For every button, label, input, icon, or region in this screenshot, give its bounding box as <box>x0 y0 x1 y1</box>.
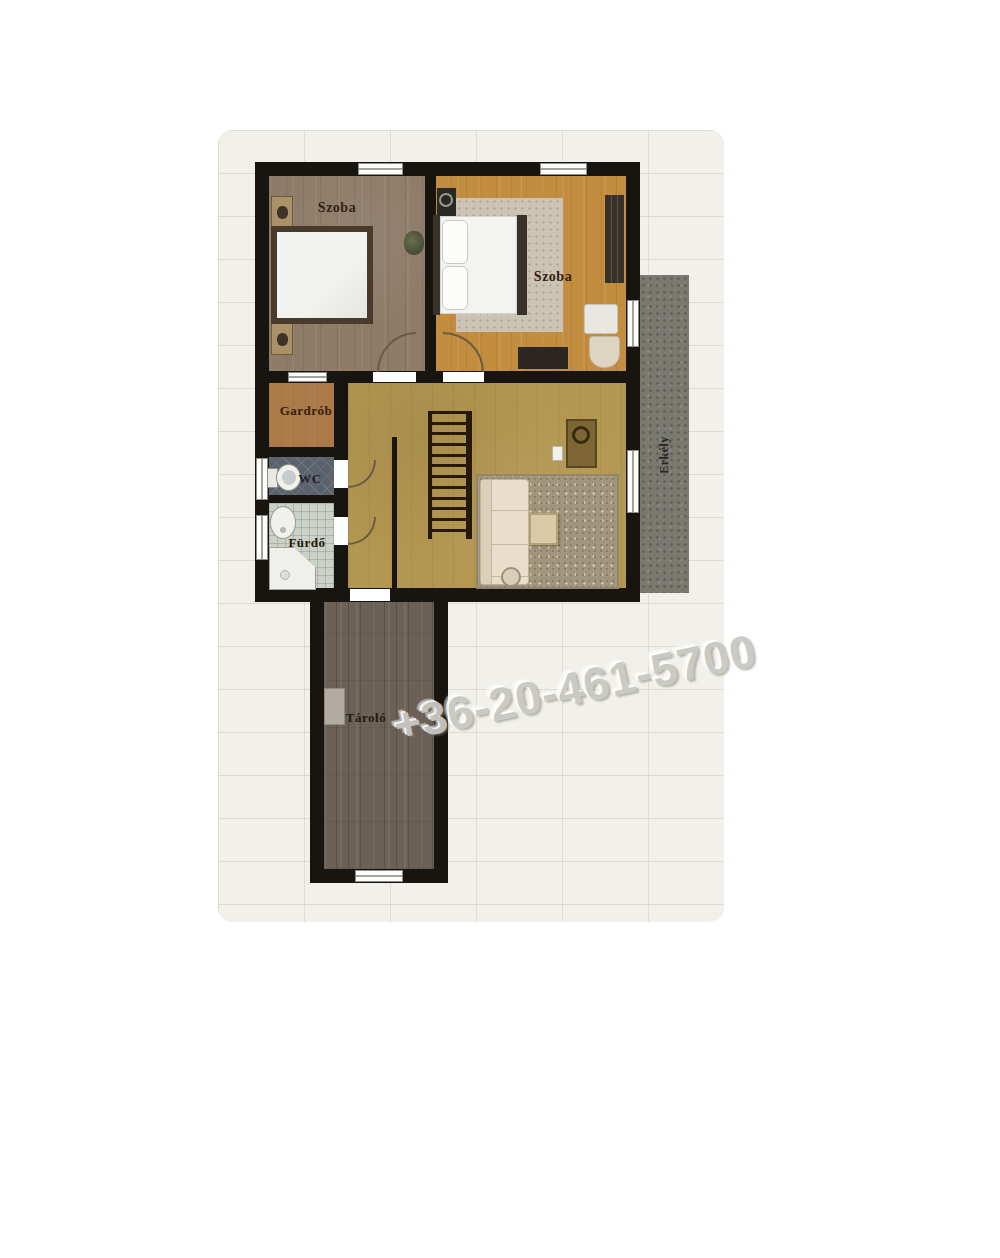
door-opening <box>373 372 416 382</box>
window <box>358 163 403 175</box>
mirror-icon <box>439 193 453 207</box>
desk <box>566 419 597 468</box>
shelf <box>324 688 345 725</box>
outlet <box>552 446 563 461</box>
wall-storage-left <box>310 602 324 883</box>
room-label-bedroom-left: Szoba <box>318 200 356 216</box>
balcony-area <box>640 275 689 593</box>
wall-hall-partition <box>392 437 397 588</box>
door-opening <box>350 589 390 601</box>
coffee-table <box>529 513 558 545</box>
door-opening <box>443 372 484 382</box>
door-opening <box>334 517 348 545</box>
floor-plan-page: Szoba Szoba Gardrób WC Fürdő Tároló Erké… <box>0 0 1000 1258</box>
toilet-bowl <box>282 470 296 485</box>
plant-icon <box>404 231 424 255</box>
drain-icon <box>280 570 290 580</box>
bed <box>271 226 373 324</box>
cushion-seam <box>491 510 528 511</box>
window-balcony-door <box>627 450 639 513</box>
sofa-back <box>481 480 492 584</box>
mattress <box>277 232 367 318</box>
lamp-icon <box>572 426 590 444</box>
side-table <box>501 567 521 587</box>
bed <box>433 215 527 315</box>
pillow <box>442 220 468 264</box>
door-opening <box>334 460 348 488</box>
bench <box>518 347 568 369</box>
wall-bottom <box>255 588 640 602</box>
pillow <box>442 266 468 310</box>
headboard <box>433 215 440 315</box>
window-balcony-door <box>627 300 639 347</box>
wall-wardrobe-wc <box>269 447 348 457</box>
room-label-wc: WC <box>298 471 321 487</box>
cushion-seam <box>491 544 528 545</box>
wardrobe-cabinet <box>605 195 624 283</box>
dresser <box>437 188 456 218</box>
armchair <box>589 336 620 368</box>
window <box>256 515 268 560</box>
nightstand <box>271 322 293 355</box>
wall-wc-bathroom <box>269 495 348 503</box>
toilet <box>276 464 301 491</box>
drain-icon <box>280 527 286 533</box>
room-label-bathroom: Fürdő <box>288 535 325 551</box>
window-wardrobe <box>288 372 327 382</box>
ottoman <box>584 304 618 334</box>
room-label-bedroom-right: Szoba <box>534 269 572 285</box>
window <box>540 163 587 175</box>
footboard <box>517 215 527 315</box>
room-label-wardrobe: Gardrób <box>280 403 333 419</box>
staircase <box>428 411 472 539</box>
lamp-icon <box>277 206 288 219</box>
lamp-icon <box>277 333 288 346</box>
wall-right <box>626 162 640 602</box>
window-storage <box>355 870 403 882</box>
room-label-balcony: Erkély <box>657 436 672 474</box>
nightstand <box>271 196 293 228</box>
